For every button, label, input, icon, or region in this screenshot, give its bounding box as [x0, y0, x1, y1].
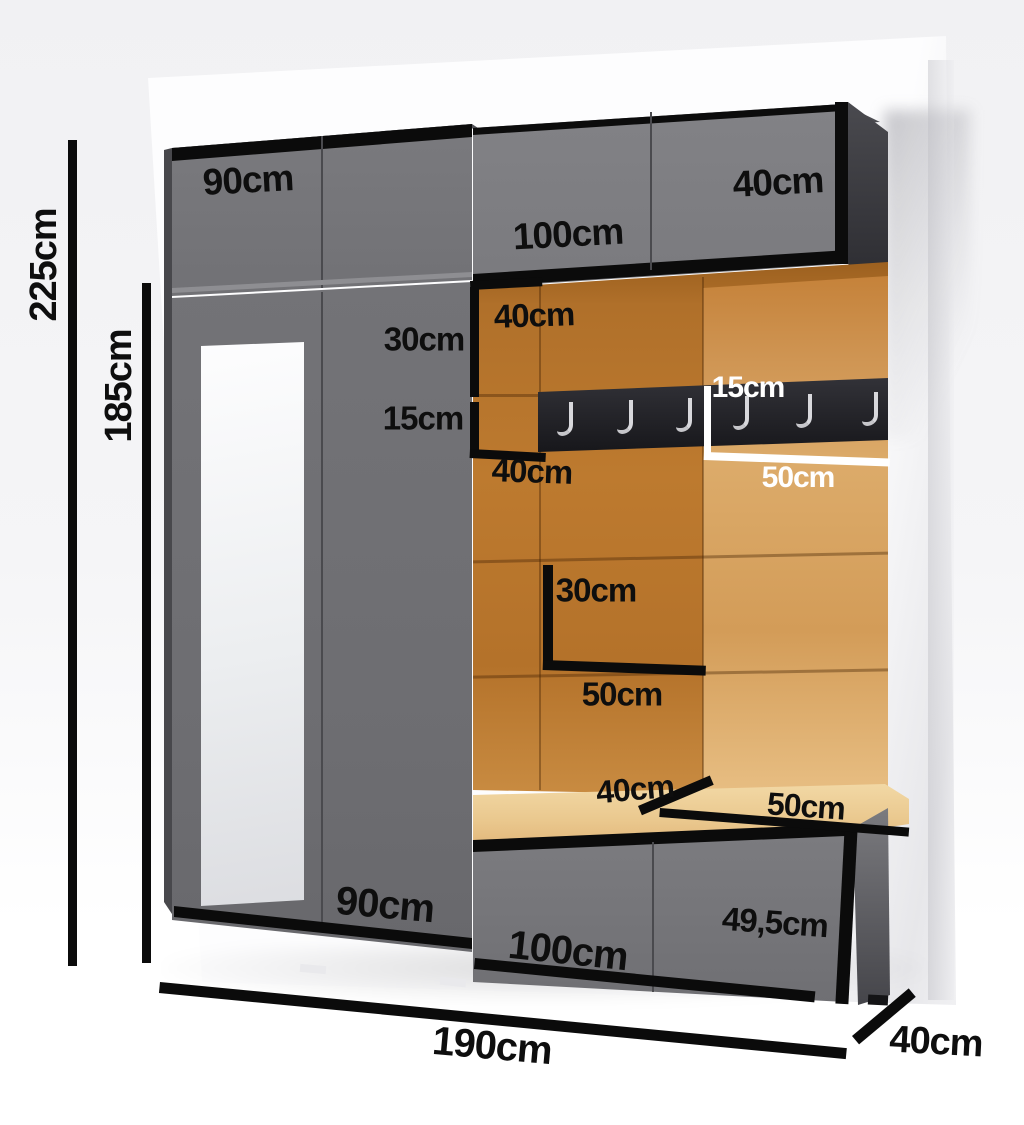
label-height-wardrobe: 185cm	[100, 329, 138, 442]
bench-cabinet-divider	[652, 842, 654, 992]
label-hook-panel-height: 15cm	[712, 373, 785, 403]
wall-shadow	[884, 110, 970, 440]
mirror	[201, 342, 304, 906]
label-wardrobe-width: 90cm	[334, 881, 435, 929]
label-panel-top-height: 30cm	[384, 323, 464, 356]
upholstered-panel-right-column	[703, 276, 888, 798]
bench-foot	[868, 994, 888, 1005]
panel-seam	[473, 394, 539, 397]
label-panel-lower-height: 30cm	[556, 574, 636, 607]
label-top-cabinet-left: 90cm	[202, 159, 294, 201]
label-bench-seat-width: 50cm	[766, 787, 846, 824]
top-cabinet-left-divider	[321, 136, 323, 288]
label-panel-mid-height: 15cm	[383, 402, 463, 435]
label-top-cabinet-right-width: 100cm	[512, 213, 624, 256]
hanging-cabinet-right-frame	[835, 102, 848, 264]
panel-seam	[702, 277, 704, 796]
dim-line-panel-lower-height	[543, 565, 553, 670]
label-height-total: 225cm	[25, 208, 63, 321]
label-bench-seat-depth: 40cm	[595, 770, 675, 809]
hanging-cabinet-divider	[650, 112, 652, 270]
label-total-depth: 40cm	[888, 1021, 983, 1064]
dim-line-height-wardrobe	[142, 283, 151, 963]
dim-line-height-total	[68, 140, 77, 966]
wall-corner-shading	[928, 60, 954, 1000]
wardrobe-door-divider	[321, 292, 323, 924]
label-panel-lower-width: 50cm	[582, 678, 662, 711]
label-panel-top-width: 40cm	[493, 297, 575, 333]
furniture-dimension-diagram: 225cm 185cm 90cm 100cm 40cm 40cm 30cm 15…	[0, 0, 1024, 1125]
label-total-width: 190cm	[431, 1021, 554, 1071]
label-bench-cabinet-height: 49,5cm	[721, 902, 829, 942]
dim-line-panel-top-height	[470, 287, 479, 397]
label-hook-panel-width: 50cm	[762, 463, 835, 493]
panel-seam	[539, 286, 541, 790]
dim-line-hook-height	[704, 386, 711, 458]
label-top-cabinet-right-door: 40cm	[732, 161, 824, 203]
label-panel-mid-width: 40cm	[491, 453, 573, 489]
